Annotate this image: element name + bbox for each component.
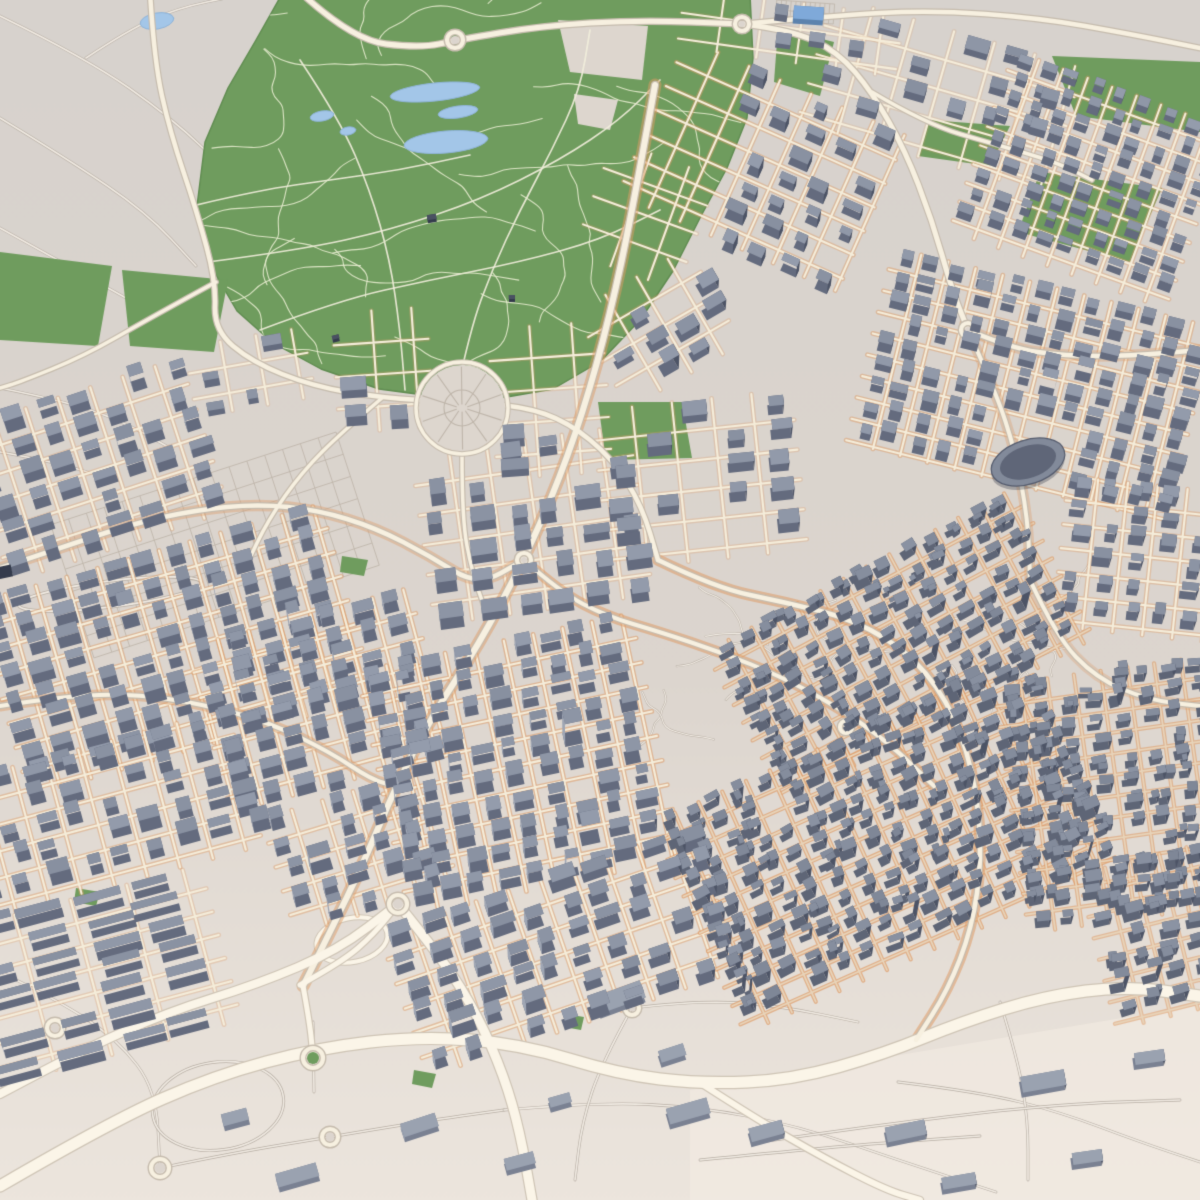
city-map-render [0,0,1200,1200]
map-canvas [0,0,1200,1200]
